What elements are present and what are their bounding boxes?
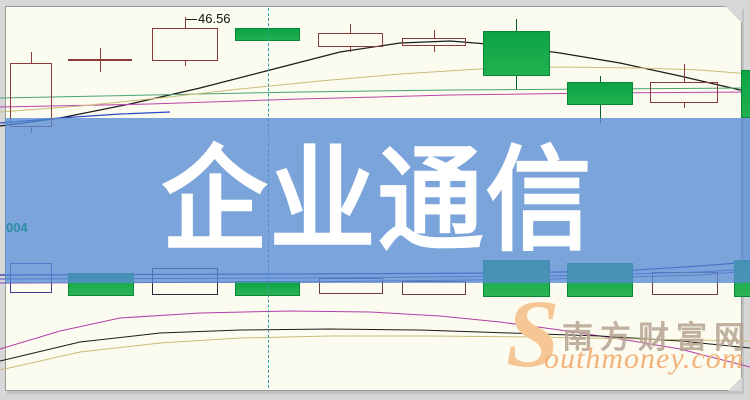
- x-axis-year-label: 004: [6, 220, 28, 235]
- watermark-site-name-en: outhmoney.com: [544, 342, 744, 376]
- title-banner: 企业通信: [5, 118, 750, 283]
- price-annotation-value: 46.56: [198, 11, 231, 26]
- banner-title: 企业通信: [162, 143, 594, 257]
- candle-down-filled: [741, 70, 750, 118]
- watermark: S 南方财富网 outhmoney.com: [500, 290, 750, 395]
- page-curl-icon: [725, 6, 742, 23]
- price-annotation-tick: [186, 19, 197, 20]
- stock-chart-screenshot: 46.56 企业通信 004 S 南方财富网 outhmoney.com: [0, 0, 750, 400]
